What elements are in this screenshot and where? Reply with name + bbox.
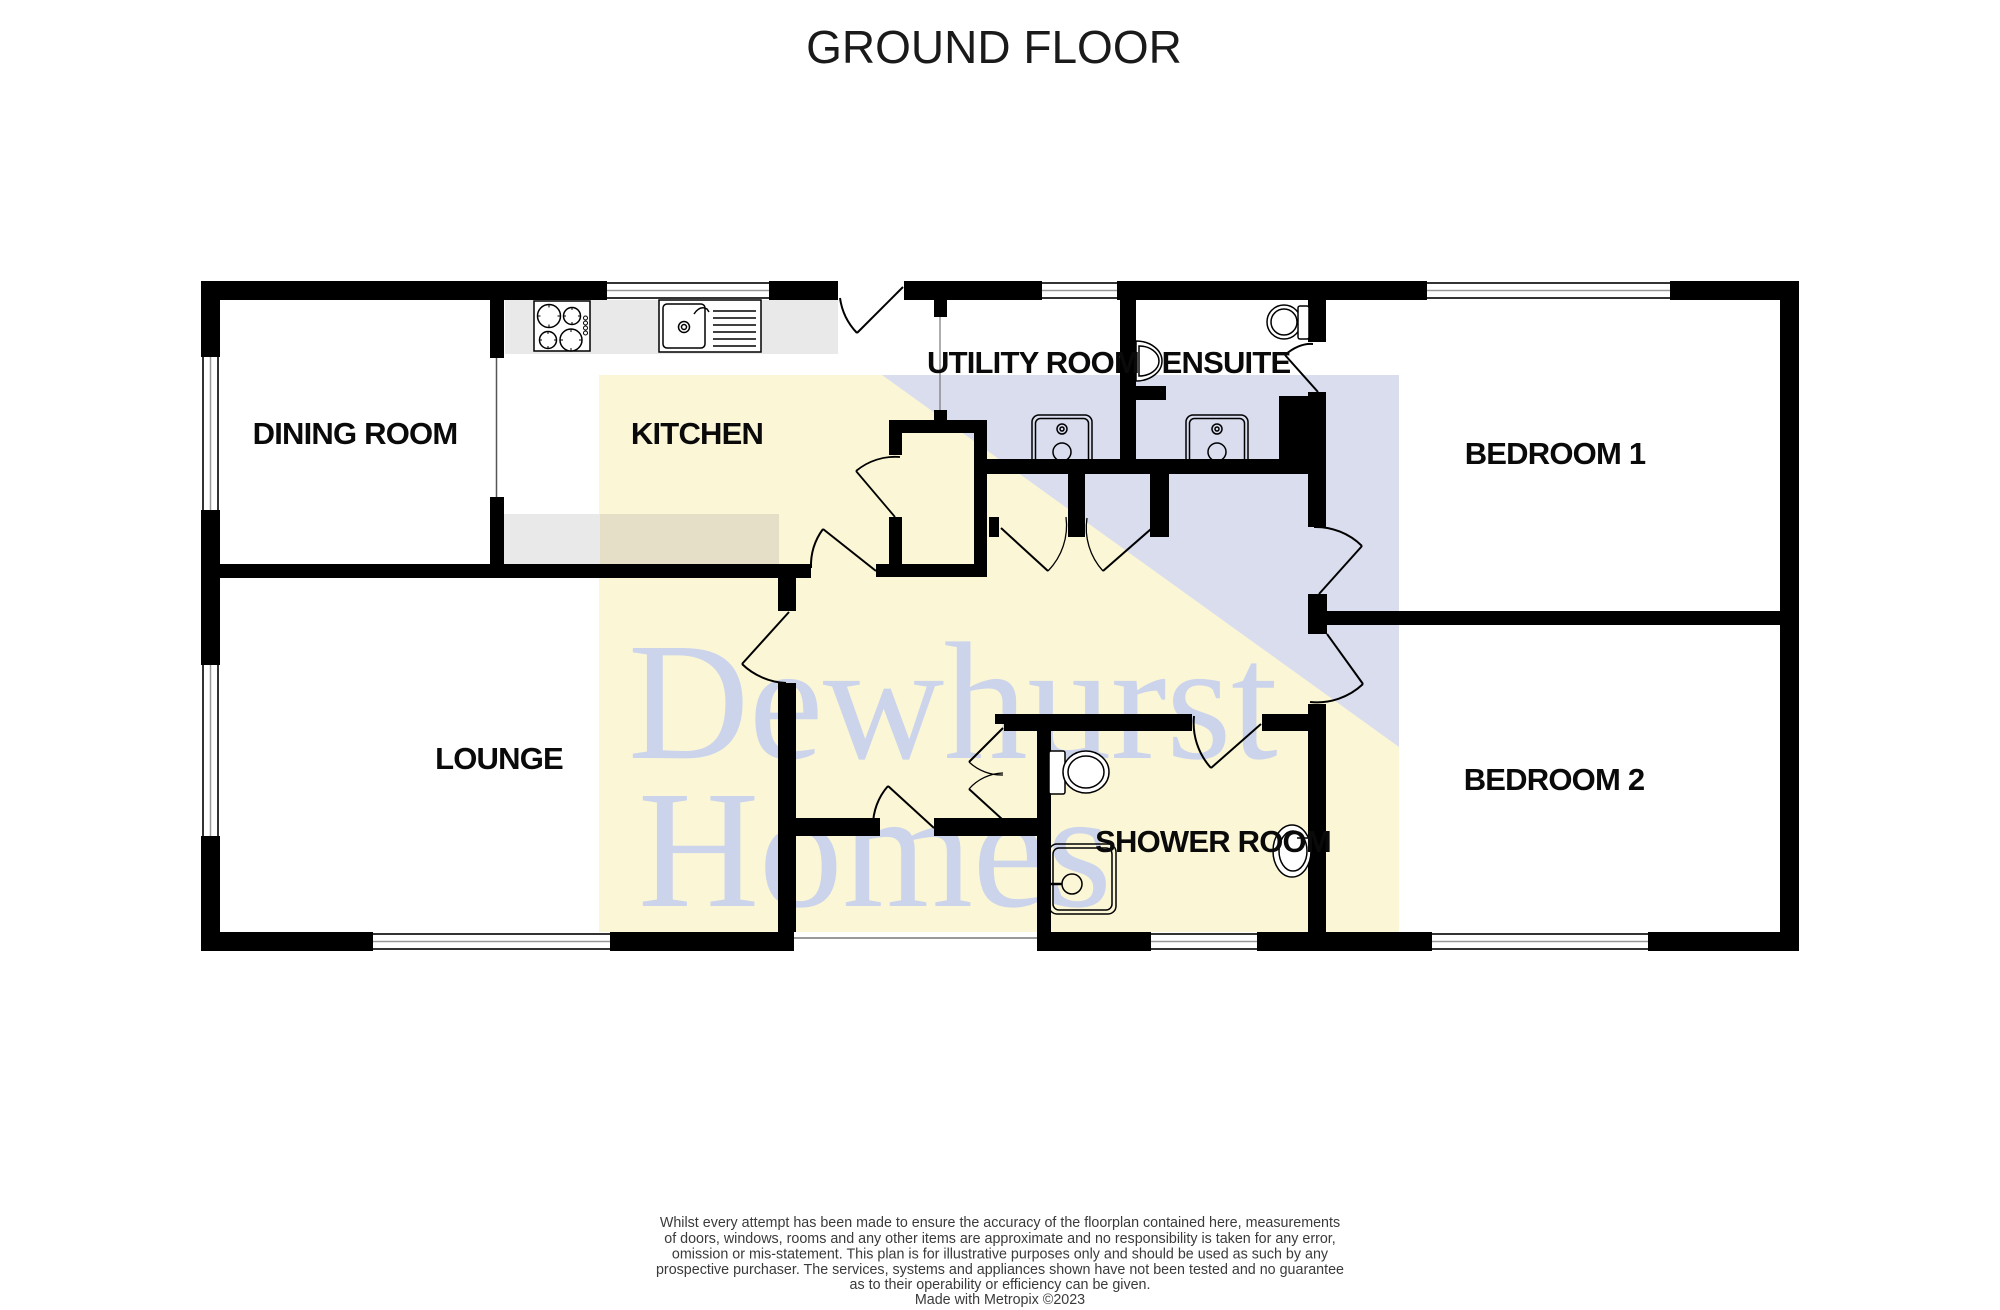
svg-text:BEDROOM 1: BEDROOM 1: [1465, 436, 1646, 471]
svg-text:Made with Metropix ©2023: Made with Metropix ©2023: [915, 1292, 1085, 1308]
svg-text:prospective purchaser. The ser: prospective purchaser. The services, sys…: [656, 1262, 1344, 1278]
svg-text:ENSUITE: ENSUITE: [1162, 345, 1291, 380]
svg-text:of doors, windows, rooms and a: of doors, windows, rooms and any other i…: [664, 1231, 1336, 1247]
svg-text:KITCHEN: KITCHEN: [631, 416, 763, 451]
svg-text:GROUND FLOOR: GROUND FLOOR: [806, 21, 1182, 73]
svg-text:omission or mis-statement. Thi: omission or mis-statement. This plan is …: [672, 1247, 1329, 1263]
svg-text:as to their operability or eff: as to their operability or efficiency ca…: [850, 1277, 1151, 1293]
svg-text:LOUNGE: LOUNGE: [435, 741, 563, 776]
svg-text:DINING ROOM: DINING ROOM: [253, 416, 458, 451]
svg-text:BEDROOM 2: BEDROOM 2: [1464, 762, 1645, 797]
svg-text:Whilst every attempt has been: Whilst every attempt has been made to en…: [660, 1215, 1340, 1231]
svg-text:UTILITY ROOM: UTILITY ROOM: [927, 345, 1139, 380]
svg-text:SHOWER ROOM: SHOWER ROOM: [1095, 824, 1331, 859]
